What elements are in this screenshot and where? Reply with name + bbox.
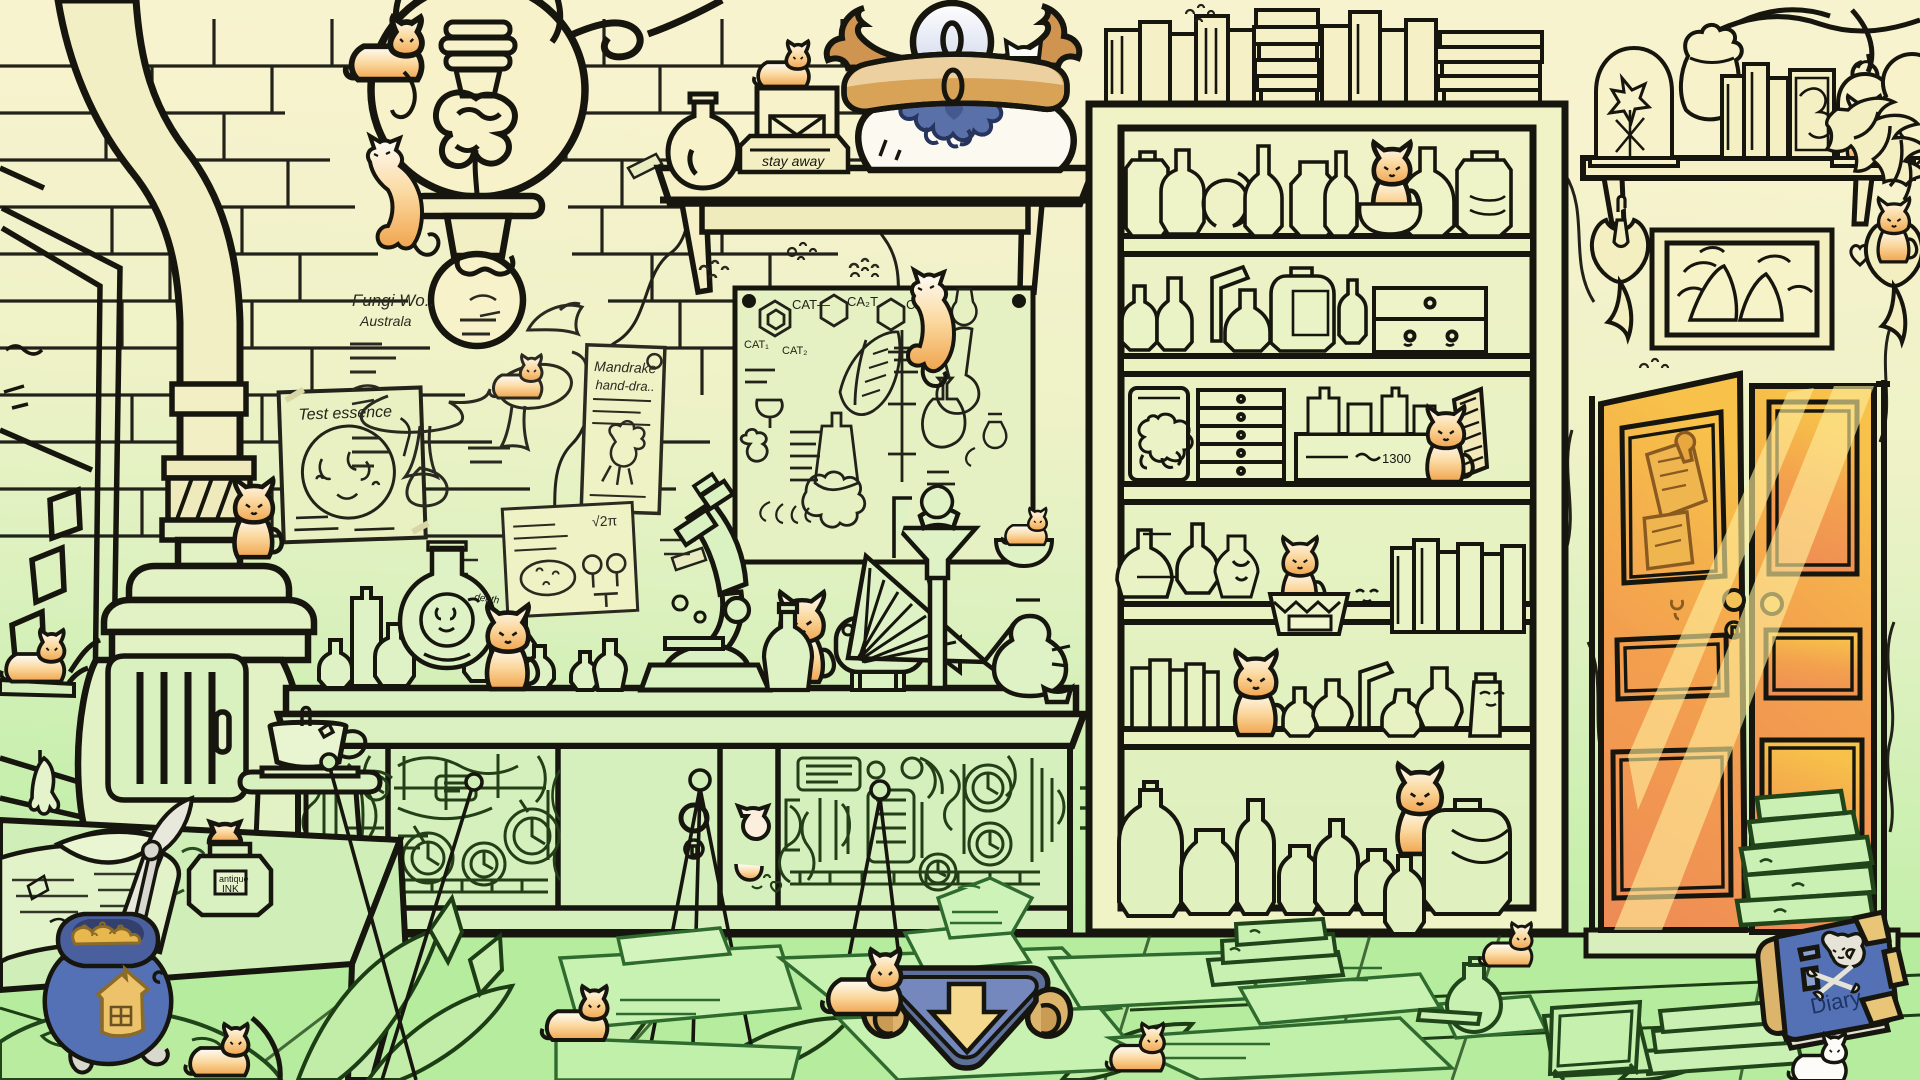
svg-text:stay away: stay away xyxy=(762,153,825,169)
svg-text:Australa: Australa xyxy=(359,313,412,329)
svg-text:CAT₂: CAT₂ xyxy=(782,345,807,357)
svg-text:antique: antique xyxy=(219,874,249,884)
svg-text:CA₂T: CA₂T xyxy=(847,294,878,309)
svg-text:CAT—: CAT— xyxy=(792,297,830,312)
svg-text:Test essence: Test essence xyxy=(298,404,392,424)
svg-text:Fungi Wo..: Fungi Wo.. xyxy=(352,291,434,310)
svg-text:CAT₁: CAT₁ xyxy=(744,339,769,351)
svg-text:INK: INK xyxy=(222,884,239,895)
svg-text:hand-dra..: hand-dra.. xyxy=(595,377,655,394)
svg-text:√2π: √2π xyxy=(592,512,618,529)
svg-text:1300: 1300 xyxy=(1382,451,1411,466)
